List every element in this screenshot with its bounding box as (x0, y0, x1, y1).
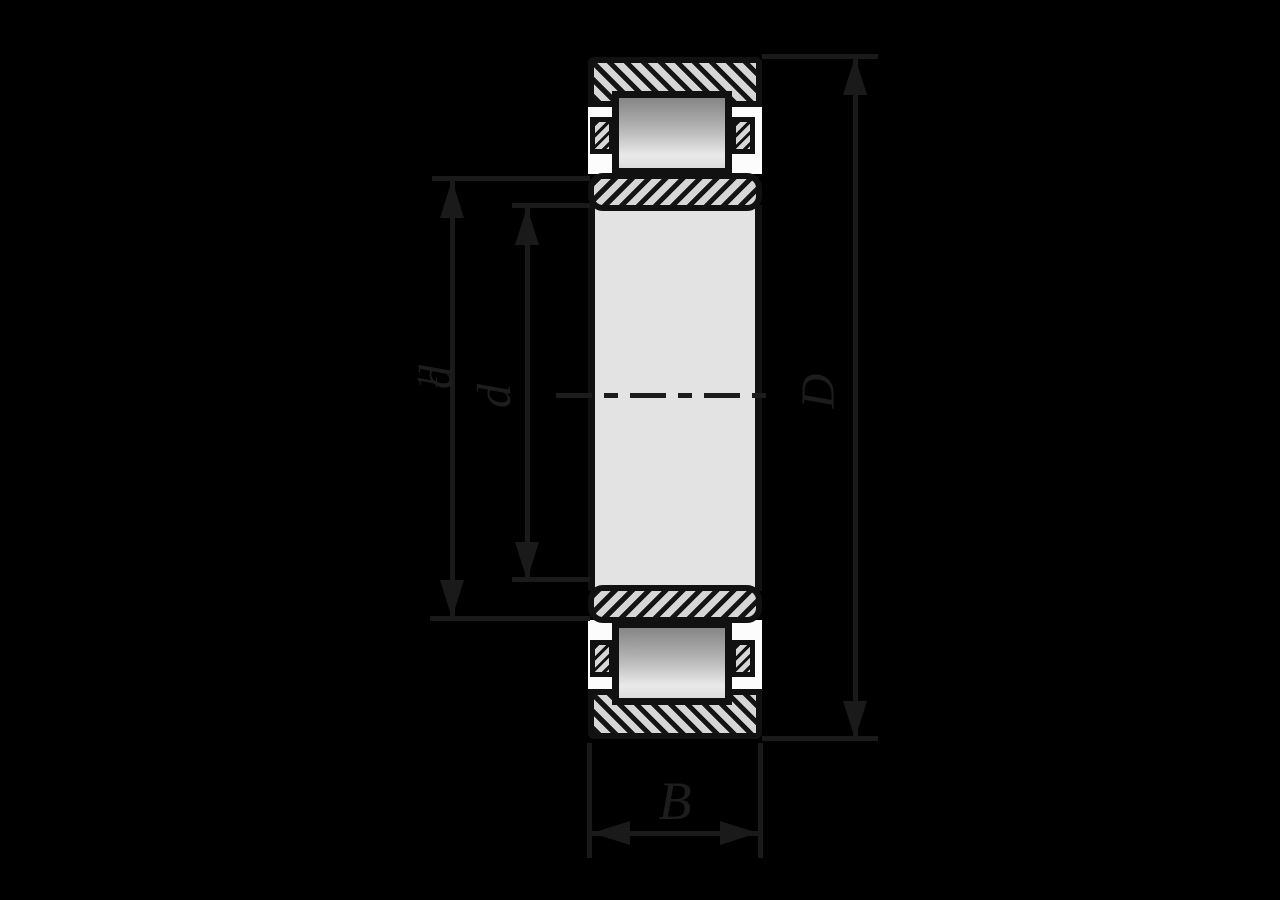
inner-ring-bore-section (588, 205, 762, 591)
d-arrowhead-bottom (515, 542, 539, 580)
inner-ring-bottom-section (588, 585, 762, 623)
B-arrowhead-right (720, 821, 758, 845)
D-arrowhead-top (843, 57, 867, 95)
roller-top (612, 91, 732, 175)
D-dimension-line (853, 58, 858, 738)
d-dimension-label: d (471, 384, 519, 408)
d1-dimension-line (450, 181, 455, 618)
d-dimension-line (525, 207, 530, 581)
B-extension-line-right (758, 743, 763, 858)
d1-arrowhead-top (440, 180, 464, 218)
cage-section-bottom-left (590, 640, 614, 677)
d-arrowhead-top (515, 207, 539, 245)
d1-arrowhead-bottom (440, 580, 464, 618)
D-arrowhead-bottom (843, 701, 867, 739)
D-dimension-label: D (795, 374, 843, 409)
cage-section-bottom-right (731, 640, 755, 677)
cage-section-top-right (731, 117, 755, 154)
axis-centerline (556, 393, 772, 398)
B-arrowhead-left (592, 821, 630, 845)
B-dimension-label: B (659, 774, 692, 828)
d1-label-subscript: 1 (413, 374, 443, 389)
inner-ring-top-section (588, 173, 762, 211)
roller-bottom (612, 621, 732, 705)
cage-section-top-left (590, 117, 614, 154)
diagram-canvas: d1 d D B (0, 0, 1280, 900)
